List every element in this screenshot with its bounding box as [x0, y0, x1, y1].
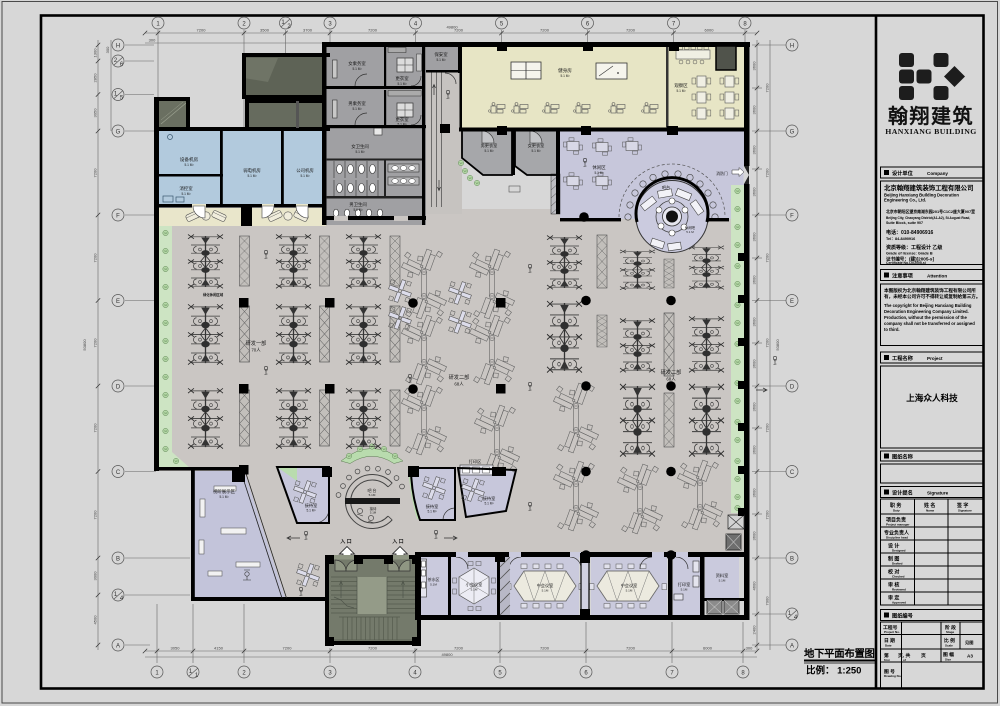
svg-text:G: G: [116, 130, 121, 136]
svg-text:7200: 7200: [283, 646, 293, 651]
svg-text:2400: 2400: [752, 625, 757, 635]
svg-text:6000: 6000: [703, 646, 713, 651]
svg-text:7200: 7200: [765, 83, 770, 93]
svg-text:5.1M: 5.1M: [626, 589, 633, 593]
svg-text:5.1M: 5.1M: [430, 583, 437, 587]
svg-text:E: E: [790, 299, 794, 305]
svg-text:消防门: 消防门: [716, 171, 728, 176]
svg-text:to third.: to third.: [884, 327, 900, 332]
svg-text:5.1 M²: 5.1 M²: [247, 174, 256, 178]
svg-text:Drafted: Drafted: [892, 562, 903, 566]
svg-text:7200: 7200: [765, 168, 770, 178]
svg-text:7200: 7200: [765, 338, 770, 348]
svg-text:Project No.: Project No.: [884, 630, 900, 634]
svg-text:3050: 3050: [171, 646, 181, 651]
svg-text:Drawing No.: Drawing No.: [884, 674, 902, 678]
svg-text:Signature: Signature: [927, 491, 949, 496]
svg-text:男乘务室: 男乘务室: [348, 100, 366, 107]
svg-text:5.1M: 5.1M: [471, 588, 478, 592]
svg-text:7200: 7200: [93, 168, 98, 178]
svg-text:3500: 3500: [260, 28, 270, 33]
svg-text:50800: 50800: [82, 339, 87, 351]
svg-text:女卫生间: 女卫生间: [351, 143, 369, 150]
svg-text:4600: 4600: [752, 581, 757, 591]
svg-text:7200: 7200: [454, 646, 464, 651]
svg-text:5.1M: 5.1M: [681, 588, 688, 592]
svg-text:5.1 M²: 5.1 M²: [484, 149, 493, 153]
svg-text:Decoration Engineering Company: Decoration Engineering Company Limited.: [884, 309, 969, 314]
svg-text:A: A: [116, 644, 120, 650]
svg-text:设备机房: 设备机房: [180, 156, 199, 163]
svg-text:3600: 3600: [752, 359, 757, 369]
svg-text:女更衣室: 女更衣室: [528, 142, 545, 149]
svg-text:The copyright for Beijing Hanx: The copyright for Beijing Hanxiang Build…: [884, 303, 972, 308]
svg-text:D: D: [116, 385, 121, 391]
svg-text:更衣室: 更衣室: [395, 75, 409, 82]
svg-text:3700: 3700: [303, 28, 313, 33]
svg-text:页: 页: [921, 652, 926, 659]
svg-text:入 口: 入 口: [340, 539, 351, 545]
svg-text:地下平面布置图: 地下平面布置图: [804, 647, 875, 660]
svg-text:注意事项: 注意事项: [892, 272, 914, 280]
svg-text:北京翰翔建筑装饰工程有限公司: 北京翰翔建筑装饰工程有限公司: [884, 183, 973, 192]
svg-text:上海众人科技: 上海众人科技: [906, 392, 958, 403]
svg-text:Tel：84-8490916: Tel：84-8490916: [886, 237, 915, 241]
svg-text:本图版权为北京翰翔建筑装饰工程有限公司所: 本图版权为北京翰翔建筑装饰工程有限公司所: [883, 287, 976, 294]
svg-text:3600: 3600: [752, 488, 757, 498]
svg-text:保安室: 保安室: [434, 51, 448, 58]
svg-text:5.1 M²: 5.1 M²: [353, 208, 362, 212]
svg-text:Approved: Approved: [892, 601, 906, 605]
svg-text:5.1M: 5.1M: [370, 511, 377, 515]
svg-text:5.1 M²: 5.1 M²: [355, 150, 364, 154]
svg-text:3600: 3600: [752, 275, 757, 285]
svg-text:68人: 68人: [454, 382, 464, 387]
svg-text:3600: 3600: [752, 402, 757, 412]
svg-text:Reviewed: Reviewed: [892, 588, 906, 592]
svg-text:F: F: [790, 214, 794, 220]
svg-text:打印区: 打印区: [469, 458, 482, 465]
svg-text:北京市朝阳区望京南湖东园201号C1C2座大厦907室: 北京市朝阳区望京南湖东园201号C1C2座大厦907室: [886, 209, 975, 214]
svg-text:Stage: Stage: [946, 630, 955, 634]
svg-text:6000: 6000: [705, 28, 715, 33]
svg-text:C: C: [790, 470, 795, 476]
svg-text:7200: 7200: [540, 28, 550, 33]
svg-text:7200: 7200: [93, 423, 98, 433]
svg-text:7200: 7200: [765, 253, 770, 263]
svg-text:7200: 7200: [626, 646, 636, 651]
svg-text:吧台: 吧台: [662, 184, 670, 191]
svg-text:7000: 7000: [765, 596, 770, 606]
svg-text:7200: 7200: [93, 338, 98, 348]
svg-text:A: A: [790, 644, 794, 650]
svg-text:Production, without the permis: Production, without the permission of th…: [884, 315, 967, 320]
svg-text:7200: 7200: [626, 28, 636, 33]
svg-text:休闲区: 休闲区: [592, 164, 606, 171]
svg-text:5.1 M²: 5.1 M²: [300, 174, 309, 178]
svg-text:5.1 M: 5.1 M: [686, 230, 694, 234]
svg-text:5.1 M²: 5.1 M²: [427, 510, 436, 514]
svg-text:HANXIANG BUILDING: HANXIANG BUILDING: [885, 127, 977, 136]
svg-text:of: of: [903, 658, 906, 662]
svg-text:3600: 3600: [752, 232, 757, 242]
svg-text:电话：010-84906916: 电话：010-84906916: [886, 229, 933, 236]
svg-text:3600: 3600: [752, 445, 757, 455]
svg-text:2850: 2850: [93, 73, 98, 83]
svg-text:300: 300: [149, 38, 156, 43]
svg-text:B: B: [116, 557, 120, 563]
svg-text:7200: 7200: [368, 28, 378, 33]
svg-text:设计提名: 设计提名: [892, 489, 913, 497]
svg-text:男更衣室: 男更衣室: [481, 142, 498, 149]
svg-text:5.1M: 5.1M: [369, 493, 376, 497]
svg-text:G: G: [790, 130, 795, 136]
svg-text:5.1 M²: 5.1 M²: [352, 67, 361, 71]
svg-text:Discipline head: Discipline head: [886, 536, 908, 540]
svg-text:3600: 3600: [752, 61, 757, 71]
svg-text:5.1 M²: 5.1 M²: [436, 58, 445, 62]
svg-text:研发一部: 研发一部: [246, 339, 267, 347]
svg-text:300: 300: [105, 46, 110, 53]
svg-text:4500: 4500: [93, 615, 98, 625]
svg-text:Date: Date: [885, 644, 892, 648]
svg-text:B: B: [790, 557, 794, 563]
svg-text:男卫生间: 男卫生间: [349, 201, 367, 208]
svg-text:5.1 M²: 5.1 M²: [397, 82, 406, 86]
svg-text:A3: A3: [967, 654, 973, 659]
svg-text:见图: 见图: [965, 639, 973, 646]
svg-text:70人: 70人: [251, 348, 261, 353]
svg-text:资质等级：工程设计 乙级: 资质等级：工程设计 乙级: [886, 244, 942, 251]
svg-text:研发二部: 研发二部: [661, 368, 682, 376]
svg-text:Beijing City, Chaoyang Distric: Beijing City, Chaoyang District(A1-A2), …: [886, 216, 970, 220]
svg-text:5.1 M²: 5.1 M²: [181, 192, 190, 196]
svg-text:first: first: [884, 658, 890, 662]
svg-text:图纸名称: 图纸名称: [892, 453, 914, 461]
svg-text:3000: 3000: [93, 571, 98, 581]
svg-text:C: C: [116, 470, 121, 476]
svg-text:Certificate No.(J)(2005-s): Certificate No.(J)(2005-s): [886, 261, 926, 265]
svg-text:H: H: [790, 44, 794, 50]
svg-text:F: F: [116, 214, 120, 220]
svg-text:Project manager: Project manager: [886, 523, 910, 527]
svg-text:49800: 49800: [441, 652, 453, 657]
svg-text:观察区: 观察区: [674, 82, 688, 89]
svg-text:5.1M: 5.1M: [719, 579, 726, 583]
svg-text:图纸编号: 图纸编号: [892, 612, 913, 620]
svg-text:Project: Project: [927, 356, 943, 361]
svg-text:5.1 M²: 5.1 M²: [484, 502, 493, 506]
svg-text:3600: 3600: [752, 187, 757, 197]
svg-text:Engineering Co., Ltd.: Engineering Co., Ltd.: [884, 198, 926, 203]
svg-text:5.1 M²: 5.1 M²: [594, 171, 603, 175]
svg-text:绿化休闲区域: 绿化休闲区域: [203, 292, 224, 297]
svg-text:3600: 3600: [752, 145, 757, 155]
svg-text:女乘务室: 女乘务室: [348, 60, 366, 67]
svg-text:7200: 7200: [93, 253, 98, 263]
svg-text:5.1 M²: 5.1 M²: [306, 509, 315, 513]
svg-text:3600: 3600: [752, 317, 757, 327]
svg-text:茶水区: 茶水区: [428, 576, 440, 582]
svg-text:5.1 M²: 5.1 M²: [184, 163, 193, 167]
svg-text:50800: 50800: [775, 339, 780, 351]
svg-text:有，未经本公司许可不得转让或复制给第三方。: 有，未经本公司许可不得转让或复制给第三方。: [884, 293, 980, 300]
svg-text:7200: 7200: [197, 28, 207, 33]
svg-text:E: E: [116, 299, 120, 305]
svg-text:7200: 7200: [540, 646, 550, 651]
svg-text:Attention: Attention: [927, 274, 947, 279]
svg-text:5.1M: 5.1M: [542, 589, 549, 593]
svg-text:Suite Block, suite 907: Suite Block, suite 907: [886, 221, 923, 225]
svg-text:49800: 49800: [446, 25, 458, 30]
svg-text:H: H: [116, 44, 120, 50]
svg-text:研发二部: 研发二部: [449, 373, 470, 381]
svg-text:5.1 M²: 5.1 M²: [560, 74, 569, 78]
svg-text:Size: Size: [945, 658, 951, 662]
svg-text:300: 300: [746, 646, 753, 651]
svg-text:健身房: 健身房: [558, 67, 572, 74]
svg-text:Designed: Designed: [892, 549, 906, 553]
svg-text:5.1 M²: 5.1 M²: [397, 123, 406, 127]
svg-text:工程名称: 工程名称: [892, 354, 914, 362]
svg-text:Checked: Checked: [892, 575, 905, 579]
svg-text:Name: Name: [926, 509, 935, 513]
svg-text:Company: Company: [927, 171, 948, 176]
svg-text:入 口: 入 口: [392, 539, 403, 545]
svg-text:1300: 1300: [93, 48, 98, 58]
svg-text:公司机房: 公司机房: [296, 167, 314, 174]
svg-text:翰翔建筑: 翰翔建筑: [888, 104, 974, 128]
svg-text:Signature: Signature: [958, 509, 972, 513]
svg-text:3050: 3050: [93, 108, 98, 118]
svg-text:company shall not be transferr: company shall not be transferred or assi…: [884, 321, 975, 326]
svg-text:D: D: [790, 385, 795, 391]
svg-text:3600: 3600: [752, 105, 757, 115]
svg-text:5.1 M²: 5.1 M²: [676, 89, 685, 93]
svg-text:设计单位: 设计单位: [892, 169, 914, 177]
svg-text:4150: 4150: [214, 646, 224, 651]
svg-text:Grade of license: Grade B: Grade of license: Grade B: [886, 252, 933, 256]
svg-text:7200: 7200: [765, 510, 770, 520]
svg-text:5.1 M²: 5.1 M²: [219, 495, 228, 499]
svg-text:7200: 7200: [765, 423, 770, 433]
svg-text:视听展示区: 视听展示区: [213, 488, 236, 495]
svg-text:3600: 3600: [752, 531, 757, 541]
svg-text:5.1 M²: 5.1 M²: [531, 149, 540, 153]
svg-text:Duty: Duty: [893, 509, 900, 513]
svg-text:比例： 1:250: 比例： 1:250: [806, 665, 861, 677]
svg-text:7200: 7200: [93, 510, 98, 520]
svg-text:弱电机房: 弱电机房: [243, 167, 261, 174]
svg-text:5.1 M²: 5.1 M²: [352, 107, 361, 111]
svg-text:7200: 7200: [368, 646, 378, 651]
svg-text:Scale: Scale: [945, 644, 953, 648]
svg-text:68人: 68人: [666, 377, 676, 382]
svg-text:消控室: 消控室: [179, 185, 193, 192]
